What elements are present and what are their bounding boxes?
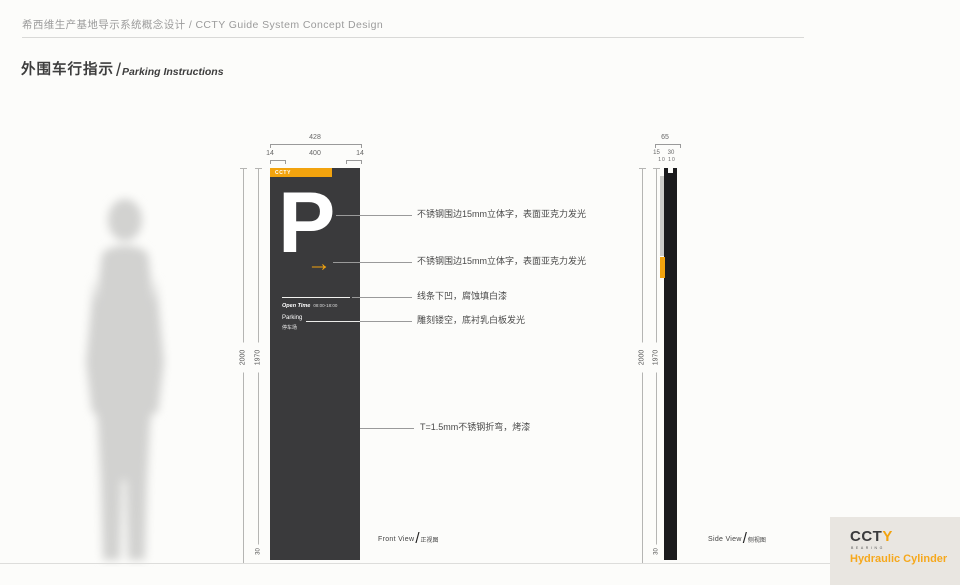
dim-bracket-65 [655,144,681,148]
dim-front-margin-left: 14 [262,150,278,157]
annotation-4: 雕刻镂空，底衬乳白板发光 [417,316,525,326]
page-title-zh: 外围车行指示 [21,58,114,79]
dim-bracket-14-right [346,160,362,164]
annotation-5: T=1.5mm不锈钢折弯，烤漆 [420,423,530,433]
dim-side-height-panel: 1970 [651,343,662,373]
side-view-label-slash: / [743,531,747,546]
front-view-label-slash: / [415,531,419,546]
design-sheet: { "header": { "project_title": "希西维生产基地导… [0,0,960,585]
sign-open-time: Open Time08:00-18:00 [282,303,337,309]
ccty-logo-y: Y [882,529,893,544]
front-view-label: Front View / 正视图 [378,531,439,546]
ground-line [0,563,830,564]
dim-bracket-14-left [270,160,286,164]
brand-tagline: Hydraulic Cylinder [850,553,947,565]
sign-arrow-icon: → [307,252,331,276]
leader-line-4-inner [306,321,360,322]
page-title: 外围车行指示 / Parking Instructions [21,58,224,79]
dim-front-height-total: 2000 [238,343,249,373]
open-time-label: Open Time [282,303,310,309]
header-divider [22,37,804,38]
sign-parking-en: Parking [282,315,302,321]
dim-side-depth-total: 65 [650,134,680,141]
tick [255,168,262,169]
page-title-en: Parking Instructions [122,66,224,78]
side-view-label-en: Side View [708,536,742,543]
project-title: 希西维生产基地导示系统概念设计 / CCTY Guide System Conc… [22,17,383,32]
dim-side-mid: 30 [664,150,678,156]
leader-line-1 [336,215,412,216]
ccty-logo-subtext: BEARING [851,546,885,550]
ccty-logo: CCTY [850,529,893,544]
sign-divider-line [282,297,350,298]
tick [653,168,660,169]
side-profile-notch [668,168,673,173]
leader-line-4 [360,321,412,322]
brand-footer: CCTY BEARING Hydraulic Cylinder [830,517,960,585]
dim-front-base: 30 [254,545,263,559]
tick [639,168,646,169]
side-view-label-zh: 侧视图 [748,535,766,544]
dim-side-back: 10 10 [657,158,677,163]
dim-side-front: 15 [650,150,663,156]
side-profile-accent-strip [660,257,665,278]
tick [240,168,247,169]
sign-parking-zh: 停车场 [282,324,297,331]
dim-front-height-panel: 1970 [253,343,264,373]
annotation-2: 不锈钢围边15mm立体字，表面亚克力发光 [417,257,586,267]
ccty-logo-cct: CCT [850,529,882,544]
leader-line-2 [333,262,412,263]
dim-side-height-total: 2000 [637,343,648,373]
dim-front-margin-right: 14 [352,150,368,157]
dim-front-width-inner: 400 [284,150,346,157]
side-view-label: Side View / 侧视图 [708,531,766,546]
leader-line-5 [360,428,414,429]
dim-bracket-428 [270,144,362,148]
dim-side-base: 30 [652,545,661,559]
front-view-sign-panel: CCTY P → Open Time08:00-18:00 Parking 停车… [270,168,360,560]
page-title-slash: / [116,61,121,79]
side-profile-face-strip [660,176,664,256]
front-view-label-en: Front View [378,536,414,543]
open-time-value: 08:00-18:00 [313,303,337,308]
leader-line-3 [352,297,412,298]
annotation-3: 线条下凹，腐蚀填白漆 [417,292,507,302]
front-view-label-zh: 正视图 [421,535,439,544]
dim-front-width-total: 428 [270,134,360,141]
side-view-profile [664,168,677,560]
human-silhouette [40,182,210,567]
annotation-1: 不锈钢围边15mm立体字，表面亚克力发光 [417,210,586,220]
